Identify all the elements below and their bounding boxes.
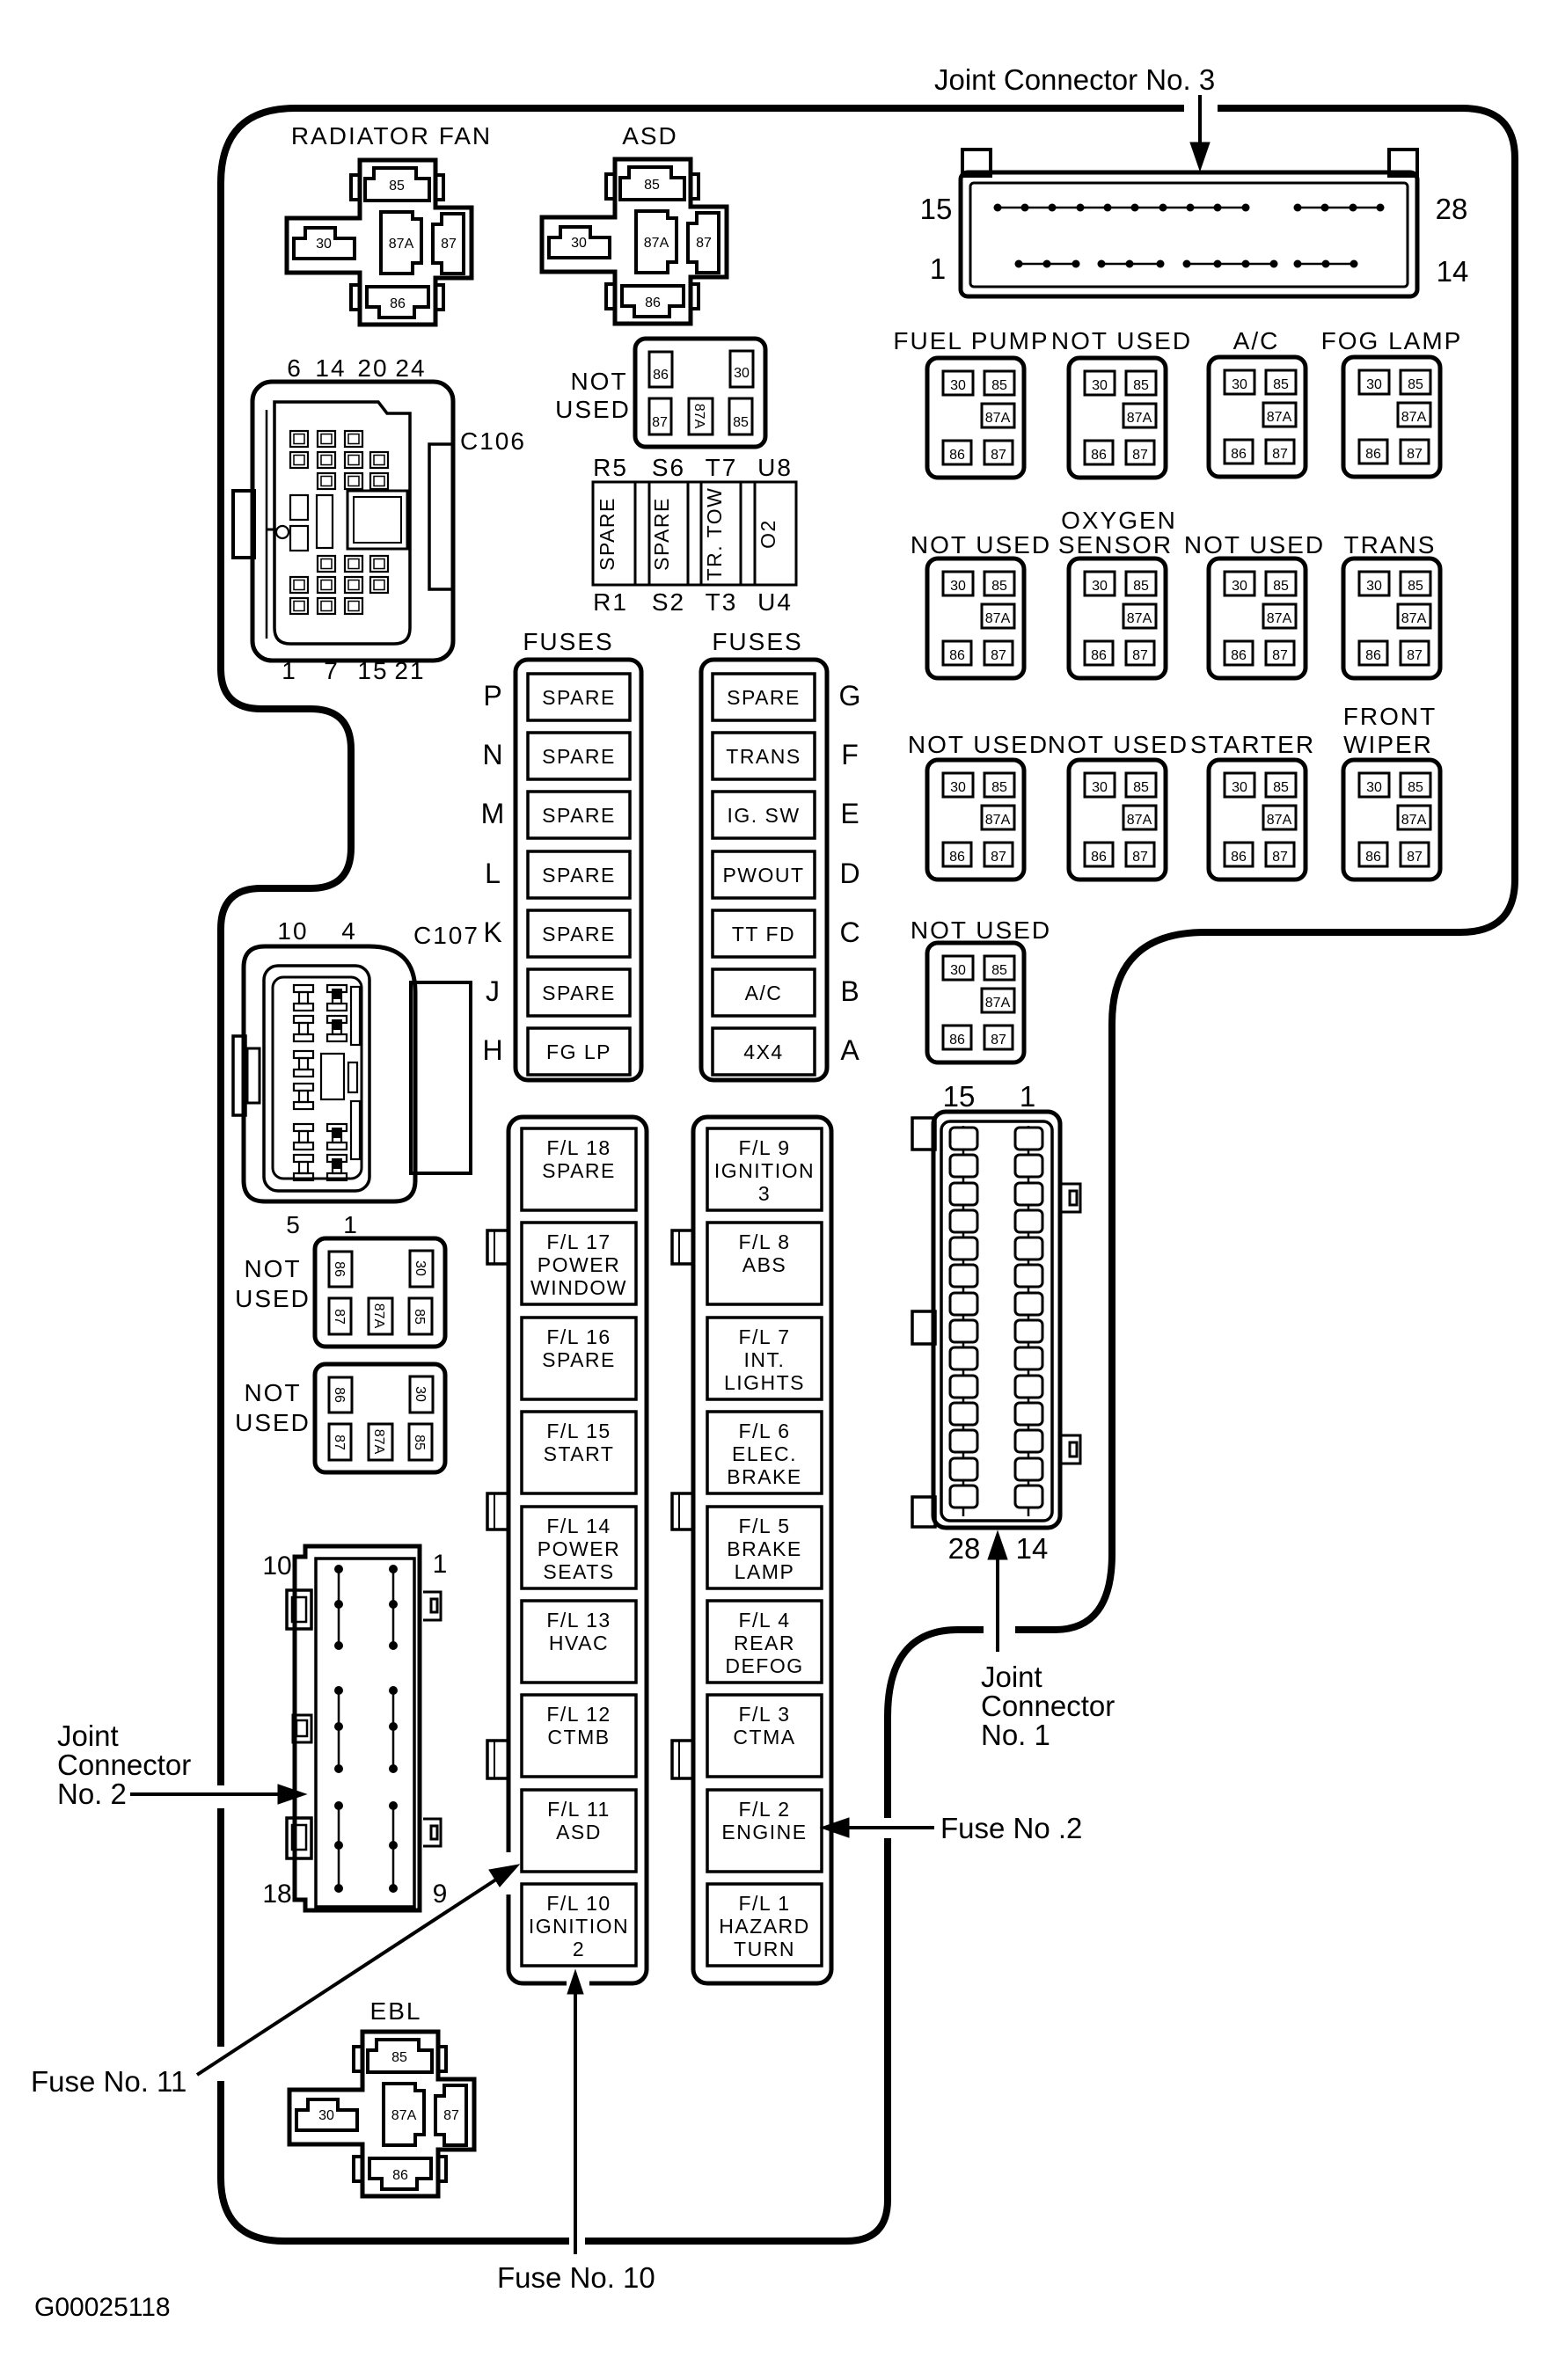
svg-text:Connector: Connector bbox=[57, 1748, 191, 1781]
svg-text:FUSES: FUSES bbox=[523, 628, 613, 655]
svg-text:IGNITION: IGNITION bbox=[714, 1159, 815, 1182]
svg-text:TT FD: TT FD bbox=[732, 923, 795, 945]
svg-text:F/L 11: F/L 11 bbox=[547, 1798, 611, 1821]
svg-text:F/L 16: F/L 16 bbox=[546, 1325, 611, 1348]
svg-text:WINDOW: WINDOW bbox=[530, 1276, 627, 1299]
svg-text:15: 15 bbox=[920, 193, 953, 225]
svg-text:86: 86 bbox=[332, 1261, 347, 1277]
svg-text:18: 18 bbox=[262, 1880, 291, 1909]
svg-text:SPARE: SPARE bbox=[542, 1159, 616, 1182]
svg-text:LIGHTS: LIGHTS bbox=[724, 1371, 805, 1394]
svg-text:NOT: NOT bbox=[244, 1255, 301, 1282]
svg-text:C106: C106 bbox=[460, 427, 526, 455]
svg-text:SPARE: SPARE bbox=[596, 497, 618, 571]
svg-text:TR. TOW: TR. TOW bbox=[703, 487, 726, 581]
svg-text:C: C bbox=[839, 916, 859, 948]
svg-text:F/L 1: F/L 1 bbox=[738, 1892, 790, 1915]
svg-text:C107: C107 bbox=[413, 922, 479, 949]
svg-text:87: 87 bbox=[332, 1309, 347, 1325]
svg-text:START: START bbox=[544, 1442, 615, 1465]
svg-text:No. 1: No. 1 bbox=[981, 1719, 1050, 1751]
svg-text:ELEC.: ELEC. bbox=[732, 1442, 797, 1465]
svg-text:NOT USED: NOT USED bbox=[1051, 327, 1192, 354]
svg-text:IG. SW: IG. SW bbox=[727, 804, 800, 827]
svg-text:OXYGEN: OXYGEN bbox=[1061, 507, 1177, 534]
svg-text:21: 21 bbox=[394, 657, 425, 684]
svg-text:F/L 10: F/L 10 bbox=[546, 1892, 611, 1915]
svg-text:SPARE: SPARE bbox=[542, 686, 616, 709]
svg-text:4X4: 4X4 bbox=[743, 1040, 783, 1063]
svg-text:NOT USED: NOT USED bbox=[911, 916, 1051, 944]
svg-text:9: 9 bbox=[433, 1880, 448, 1909]
svg-text:S2: S2 bbox=[652, 588, 685, 616]
svg-text:USED: USED bbox=[235, 1285, 311, 1312]
svg-text:30: 30 bbox=[413, 1386, 428, 1402]
svg-text:SPARE: SPARE bbox=[650, 497, 673, 571]
svg-text:30: 30 bbox=[734, 366, 750, 381]
svg-text:86: 86 bbox=[653, 368, 669, 383]
svg-text:15: 15 bbox=[943, 1080, 976, 1113]
svg-text:HAZARD: HAZARD bbox=[719, 1915, 810, 1938]
svg-text:F/L 13: F/L 13 bbox=[546, 1609, 611, 1632]
svg-text:F/L 3: F/L 3 bbox=[738, 1703, 790, 1726]
svg-text:1: 1 bbox=[343, 1211, 359, 1238]
svg-text:F/L 18: F/L 18 bbox=[546, 1136, 611, 1159]
svg-text:U8: U8 bbox=[757, 454, 793, 481]
svg-text:M: M bbox=[481, 798, 505, 829]
svg-text:7: 7 bbox=[324, 657, 340, 684]
svg-text:U4: U4 bbox=[757, 588, 793, 616]
svg-text:14: 14 bbox=[1437, 255, 1469, 288]
svg-text:NOT USED: NOT USED bbox=[908, 731, 1049, 758]
svg-text:10: 10 bbox=[262, 1551, 291, 1581]
svg-text:R5: R5 bbox=[593, 454, 628, 481]
svg-text:SPARE: SPARE bbox=[542, 804, 616, 827]
svg-text:INT.: INT. bbox=[744, 1348, 786, 1371]
svg-text:F/L 9: F/L 9 bbox=[738, 1136, 790, 1159]
svg-text:14: 14 bbox=[315, 354, 346, 382]
svg-text:Joint: Joint bbox=[981, 1661, 1042, 1693]
svg-text:SPARE: SPARE bbox=[542, 1348, 616, 1371]
svg-text:TURN: TURN bbox=[734, 1938, 795, 1960]
svg-text:SPARE: SPARE bbox=[542, 864, 616, 887]
svg-text:TRANS: TRANS bbox=[1344, 531, 1437, 558]
svg-text:NOT USED: NOT USED bbox=[1048, 731, 1189, 758]
svg-text:NOT: NOT bbox=[570, 368, 627, 395]
svg-text:L: L bbox=[485, 858, 501, 889]
svg-text:A/C: A/C bbox=[745, 982, 783, 1004]
svg-text:F/L 6: F/L 6 bbox=[738, 1420, 790, 1442]
svg-text:SPARE: SPARE bbox=[542, 923, 616, 945]
svg-text:P: P bbox=[483, 680, 501, 712]
svg-text:T7: T7 bbox=[706, 454, 738, 481]
svg-text:K: K bbox=[483, 916, 501, 948]
svg-text:F/L 8: F/L 8 bbox=[738, 1230, 790, 1253]
svg-text:POWER: POWER bbox=[538, 1253, 620, 1276]
svg-text:BRAKE: BRAKE bbox=[727, 1537, 801, 1560]
svg-text:A: A bbox=[840, 1034, 859, 1066]
svg-text:EBL: EBL bbox=[370, 1997, 422, 2025]
svg-text:28: 28 bbox=[948, 1532, 981, 1565]
svg-text:ABS: ABS bbox=[742, 1253, 787, 1276]
svg-text:Connector: Connector bbox=[981, 1690, 1115, 1722]
svg-text:TRANS: TRANS bbox=[726, 745, 801, 768]
svg-text:85: 85 bbox=[412, 1309, 427, 1325]
svg-text:NOT USED: NOT USED bbox=[1184, 531, 1325, 558]
svg-text:SEATS: SEATS bbox=[543, 1560, 614, 1583]
svg-text:ENGINE: ENGINE bbox=[721, 1821, 807, 1843]
svg-text:ASD: ASD bbox=[622, 122, 678, 150]
svg-text:F/L 12: F/L 12 bbox=[546, 1703, 611, 1726]
svg-text:SENSOR: SENSOR bbox=[1058, 531, 1173, 558]
svg-text:RADIATOR FAN: RADIATOR FAN bbox=[291, 122, 492, 150]
svg-text:Joint Connector No. 3: Joint Connector No. 3 bbox=[934, 63, 1215, 96]
svg-text:20: 20 bbox=[357, 354, 388, 382]
svg-text:FOG LAMP: FOG LAMP bbox=[1321, 327, 1463, 354]
svg-text:PWOUT: PWOUT bbox=[722, 864, 804, 887]
svg-text:24: 24 bbox=[395, 354, 426, 382]
svg-text:H: H bbox=[482, 1034, 502, 1066]
svg-text:FUSES: FUSES bbox=[712, 628, 802, 655]
svg-text:5: 5 bbox=[286, 1211, 302, 1238]
svg-text:USED: USED bbox=[555, 396, 631, 423]
svg-text:FRONT: FRONT bbox=[1343, 703, 1437, 730]
svg-text:POWER: POWER bbox=[538, 1537, 620, 1560]
svg-text:4: 4 bbox=[341, 917, 357, 945]
svg-text:G00025118: G00025118 bbox=[34, 2293, 171, 2322]
svg-text:F/L 7: F/L 7 bbox=[738, 1325, 790, 1348]
svg-text:F/L 14: F/L 14 bbox=[546, 1515, 611, 1537]
svg-text:FUEL PUMP: FUEL PUMP bbox=[893, 327, 1049, 354]
svg-text:A/C: A/C bbox=[1233, 327, 1280, 354]
svg-text:85: 85 bbox=[412, 1435, 427, 1450]
svg-text:J: J bbox=[486, 975, 500, 1007]
svg-text:6: 6 bbox=[287, 354, 303, 382]
svg-text:F/L 15: F/L 15 bbox=[546, 1420, 611, 1442]
svg-text:IGNITION: IGNITION bbox=[529, 1915, 629, 1938]
svg-text:F/L 2: F/L 2 bbox=[738, 1798, 790, 1821]
svg-text:BRAKE: BRAKE bbox=[727, 1465, 801, 1488]
svg-text:STARTER: STARTER bbox=[1190, 731, 1315, 758]
svg-text:NOT: NOT bbox=[244, 1379, 301, 1406]
svg-text:F/L 5: F/L 5 bbox=[738, 1515, 790, 1537]
svg-text:85: 85 bbox=[733, 415, 749, 430]
svg-text:10: 10 bbox=[277, 917, 308, 945]
svg-text:Joint: Joint bbox=[57, 1719, 119, 1752]
svg-text:15: 15 bbox=[357, 657, 388, 684]
svg-text:Fuse No. 10: Fuse No. 10 bbox=[497, 2261, 655, 2294]
svg-text:SPARE: SPARE bbox=[727, 686, 801, 709]
svg-text:DEFOG: DEFOG bbox=[725, 1654, 803, 1677]
svg-text:1: 1 bbox=[930, 252, 946, 285]
svg-text:1: 1 bbox=[433, 1550, 448, 1579]
svg-text:USED: USED bbox=[235, 1409, 311, 1436]
svg-text:SPARE: SPARE bbox=[542, 745, 616, 768]
svg-text:N: N bbox=[482, 739, 502, 770]
svg-text:D: D bbox=[839, 858, 859, 889]
svg-text:14: 14 bbox=[1016, 1532, 1049, 1565]
svg-text:NOT USED: NOT USED bbox=[911, 531, 1051, 558]
svg-text:HVAC: HVAC bbox=[549, 1632, 609, 1654]
svg-text:1: 1 bbox=[1020, 1080, 1035, 1113]
svg-text:S6: S6 bbox=[652, 454, 685, 481]
svg-text:86: 86 bbox=[332, 1387, 347, 1403]
svg-text:2: 2 bbox=[573, 1938, 585, 1960]
svg-text:WIPER: WIPER bbox=[1343, 731, 1433, 758]
svg-text:No. 2: No. 2 bbox=[57, 1778, 127, 1810]
svg-text:LAMP: LAMP bbox=[735, 1560, 795, 1583]
svg-text:B: B bbox=[840, 975, 859, 1007]
svg-text:O2: O2 bbox=[757, 519, 779, 549]
svg-text:F/L 17: F/L 17 bbox=[546, 1230, 611, 1253]
svg-text:87: 87 bbox=[332, 1435, 347, 1450]
svg-text:Fuse No .2: Fuse No .2 bbox=[940, 1812, 1082, 1844]
svg-text:3: 3 bbox=[758, 1182, 771, 1205]
svg-text:E: E bbox=[840, 798, 859, 829]
svg-text:R1: R1 bbox=[593, 588, 628, 616]
svg-text:87: 87 bbox=[652, 415, 668, 430]
svg-text:FG LP: FG LP bbox=[546, 1040, 611, 1063]
svg-text:ASD: ASD bbox=[556, 1821, 602, 1843]
svg-text:30: 30 bbox=[413, 1260, 428, 1276]
svg-text:REAR: REAR bbox=[734, 1632, 795, 1654]
svg-text:SPARE: SPARE bbox=[542, 982, 616, 1004]
svg-text:Fuse No. 11: Fuse No. 11 bbox=[31, 2065, 187, 2098]
svg-text:28: 28 bbox=[1436, 193, 1468, 225]
svg-text:G: G bbox=[839, 680, 861, 712]
svg-text:CTMA: CTMA bbox=[733, 1726, 795, 1748]
svg-text:T3: T3 bbox=[706, 588, 738, 616]
svg-text:1: 1 bbox=[282, 657, 297, 684]
svg-text:CTMB: CTMB bbox=[547, 1726, 610, 1748]
svg-text:F/L 4: F/L 4 bbox=[738, 1609, 790, 1632]
svg-text:F: F bbox=[841, 739, 859, 770]
